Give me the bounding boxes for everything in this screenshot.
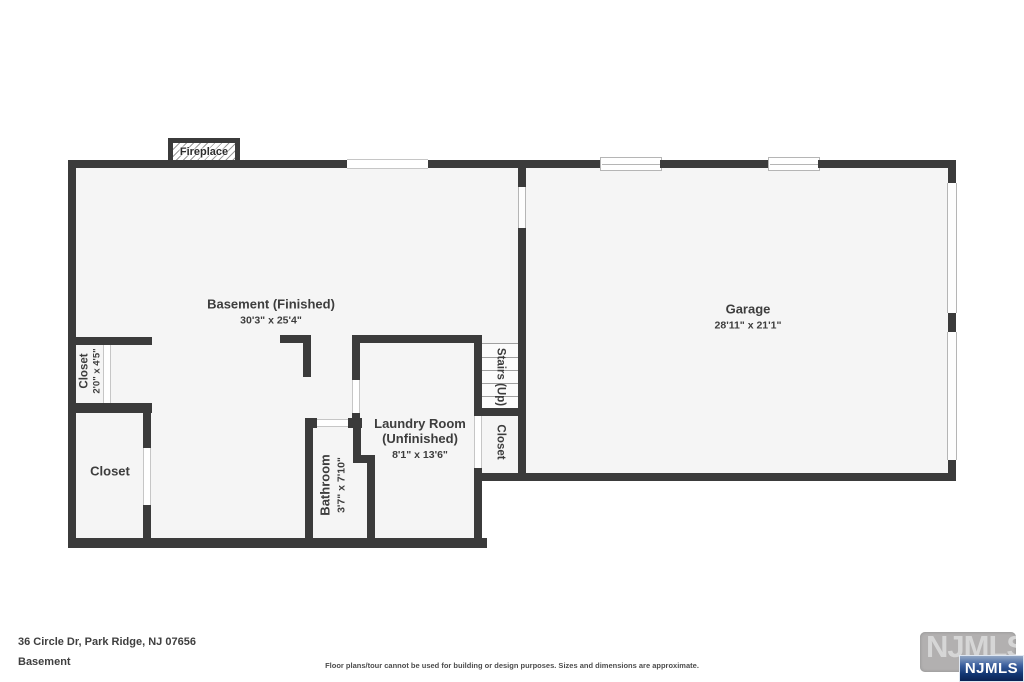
room-name: Bathroom (319, 454, 334, 515)
wall (143, 505, 151, 538)
room-dimensions: 2'0" x 4'5" (93, 348, 104, 393)
wall (948, 313, 956, 332)
wall (352, 413, 360, 428)
wall (818, 160, 956, 168)
door-opening (317, 419, 348, 427)
door-opening (352, 380, 360, 413)
wall (305, 418, 317, 428)
fireplace-label: Fireplace (180, 146, 228, 158)
stairs-label: Stairs (Up) (493, 348, 506, 406)
room-name: Garage (715, 303, 782, 318)
wall (280, 335, 311, 343)
room-dimensions: 30'3" x 25'4" (207, 314, 335, 326)
room-name: Basement (Finished) (207, 298, 335, 313)
closet-stairs-label: Closet (493, 424, 506, 459)
property-address: 36 Circle Dr, Park Ridge, NJ 07656 (18, 636, 196, 648)
closet-large-label: Closet (90, 465, 130, 480)
floor-plan: Fireplace (0, 0, 1024, 682)
bathroom-label: Bathroom 3'7" x 7'10" (319, 454, 348, 515)
closet-small-label: Closet 2'0" x 4'5" (78, 348, 103, 393)
wall (518, 160, 526, 187)
wall (518, 228, 526, 481)
laundry-label: Laundry Room (Unfinished) 8'1" x 13'6" (374, 417, 466, 461)
wall (68, 160, 76, 548)
room-name: Stairs (Up) (493, 348, 506, 406)
wall (68, 160, 347, 168)
garage-label: Garage 28'11" x 21'1" (715, 303, 782, 332)
garage-door-opening (947, 332, 957, 460)
garage-door-opening (947, 183, 957, 313)
wall (948, 460, 956, 481)
wall (68, 337, 152, 345)
wall (474, 408, 518, 416)
wall (948, 160, 956, 183)
njmls-badge-text: NJMLS (965, 660, 1018, 677)
wall (352, 335, 482, 343)
njmls-badge-logo: NJMLS (959, 655, 1024, 682)
window (518, 187, 526, 228)
basement-label: Basement (Finished) 30'3" x 25'4" (207, 298, 335, 327)
wall (305, 418, 313, 538)
room-name: Closet (493, 424, 506, 459)
wall (660, 160, 770, 168)
wall (68, 538, 487, 548)
disclaimer-text: Floor plans/tour cannot be used for buil… (0, 661, 1024, 670)
wall (352, 335, 360, 380)
room-name: (Unfinished) (374, 432, 466, 447)
window (600, 157, 662, 171)
door-opening (143, 448, 151, 505)
floorplan-page: Fireplace (0, 0, 1024, 682)
wall (303, 343, 311, 377)
room-name: Laundry Room (374, 417, 466, 432)
room-name: Closet (78, 348, 91, 393)
window (768, 157, 820, 171)
wall (474, 468, 482, 548)
wall (367, 458, 375, 538)
room-dimensions: 28'11" x 21'1" (715, 319, 782, 331)
wall (474, 343, 482, 415)
room-dimensions: 8'1" x 13'6" (374, 449, 466, 461)
room-dimensions: 3'7" x 7'10" (335, 454, 347, 515)
wall (428, 160, 602, 168)
room-name: Closet (90, 465, 130, 480)
door-opening (103, 345, 111, 405)
wall (480, 473, 956, 481)
wall (353, 428, 361, 458)
door-opening (474, 415, 482, 468)
wall-opening (347, 159, 428, 169)
room-floor (76, 168, 482, 538)
wall (143, 413, 151, 448)
wall (68, 403, 152, 413)
